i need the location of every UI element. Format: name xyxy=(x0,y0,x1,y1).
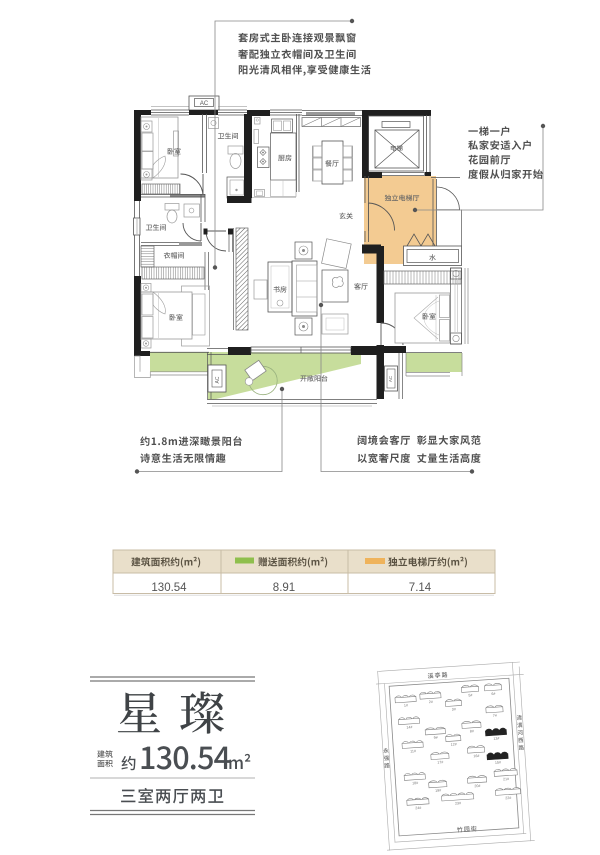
svg-text:23#: 23# xyxy=(455,801,461,805)
svg-text:9#: 9# xyxy=(434,736,438,740)
svg-text:24#: 24# xyxy=(415,806,421,810)
svg-text:130.54: 130.54 xyxy=(151,582,187,594)
svg-text:3#: 3# xyxy=(452,707,456,711)
svg-text:20#: 20# xyxy=(474,784,480,788)
svg-text:13#: 13# xyxy=(493,737,499,741)
svg-text:1#: 1# xyxy=(404,704,408,708)
svg-text:18#: 18# xyxy=(412,781,418,785)
svg-text:17#: 17# xyxy=(437,760,443,764)
svg-text:19#: 19# xyxy=(435,788,441,792)
svg-text:8#: 8# xyxy=(470,729,474,733)
svg-text:22#: 22# xyxy=(505,796,511,800)
svg-text:16#: 16# xyxy=(473,754,479,758)
svg-text:AC: AC xyxy=(215,376,221,383)
svg-text:15#: 15# xyxy=(495,760,501,764)
svg-text:12#: 12# xyxy=(451,742,457,746)
svg-text:7#: 7# xyxy=(493,714,497,718)
svg-text:14#: 14# xyxy=(406,725,412,729)
svg-text:AC: AC xyxy=(200,101,209,107)
svg-text:8.91: 8.91 xyxy=(273,582,295,594)
svg-text:2#: 2# xyxy=(429,700,433,704)
svg-text:5#: 5# xyxy=(468,693,472,697)
svg-text:21#: 21# xyxy=(503,777,509,781)
svg-text:AC: AC xyxy=(388,375,393,382)
svg-text:7.14: 7.14 xyxy=(409,582,432,594)
svg-text:11#: 11# xyxy=(410,749,416,753)
svg-text:6#: 6# xyxy=(491,692,495,696)
